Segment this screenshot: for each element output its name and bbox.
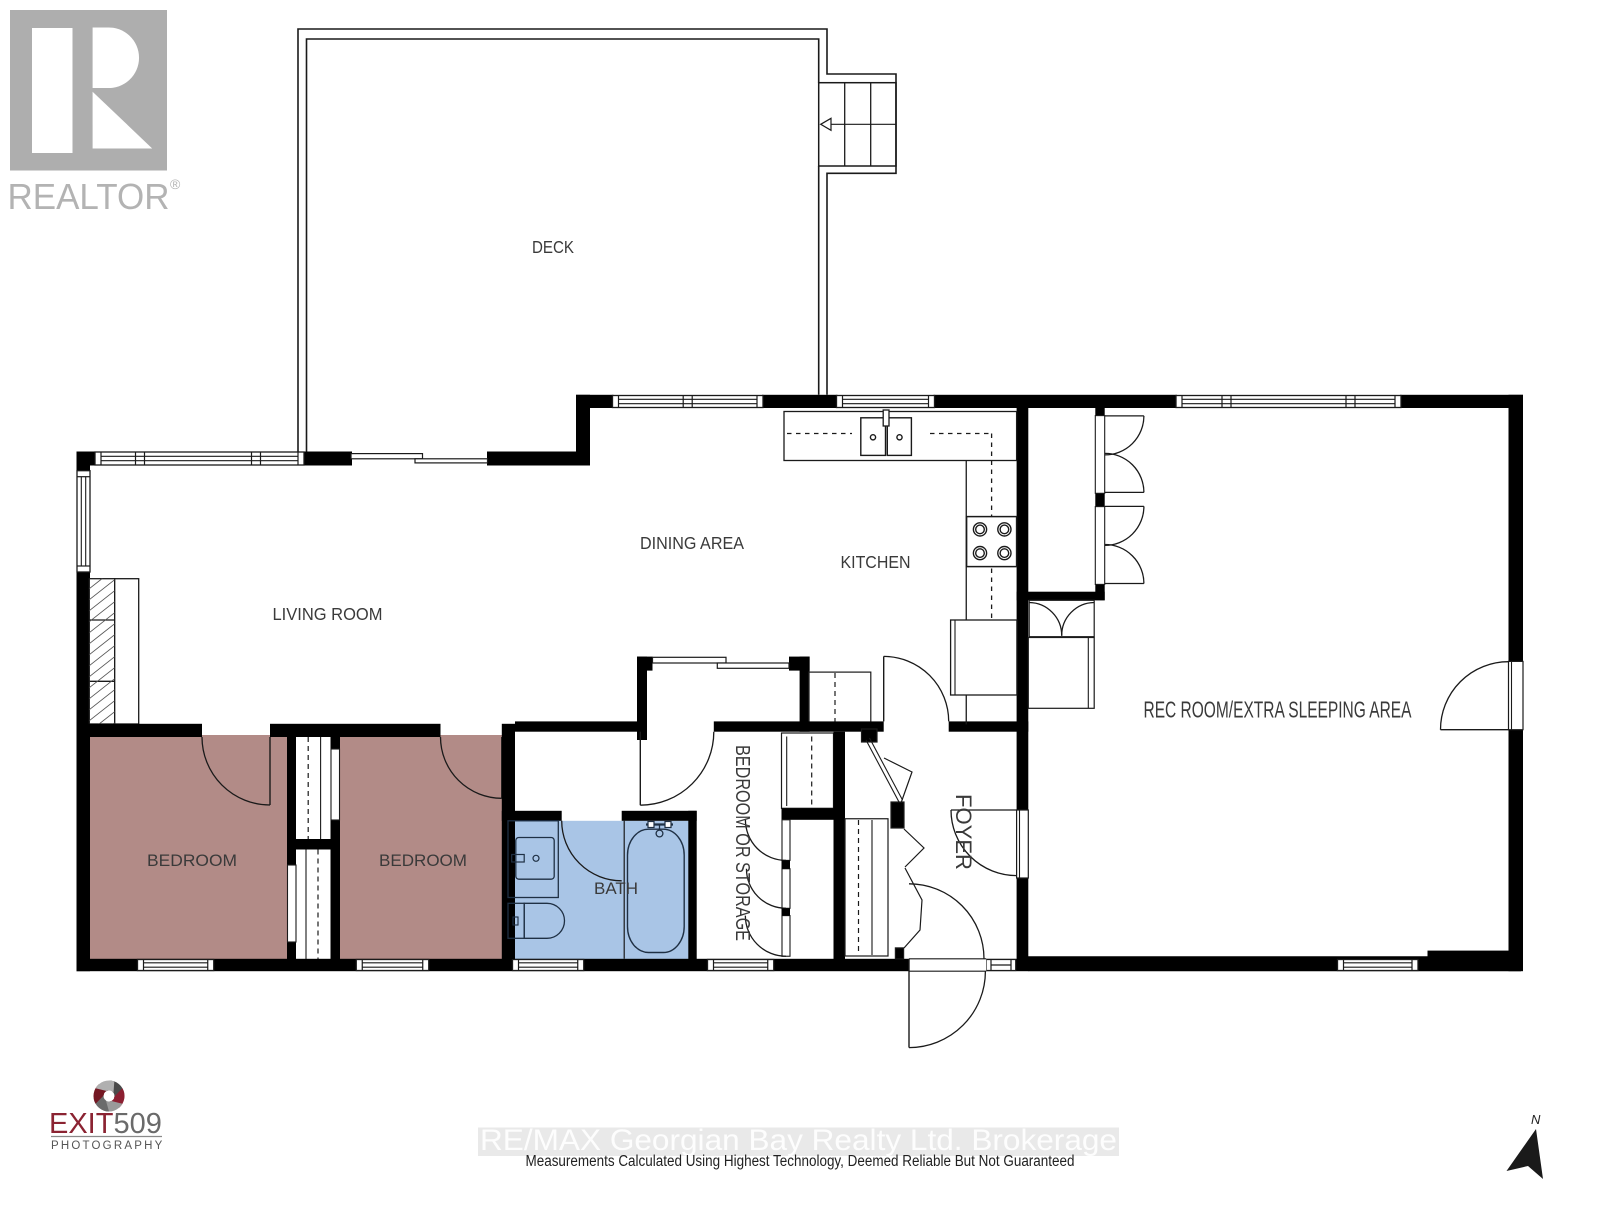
svg-text:DECK: DECK bbox=[532, 237, 574, 257]
svg-text:PHOTOGRAPHY: PHOTOGRAPHY bbox=[51, 1140, 164, 1152]
svg-text:FOYER: FOYER bbox=[951, 794, 976, 870]
svg-text:BEDROOM OR STORAGE: BEDROOM OR STORAGE bbox=[731, 745, 753, 941]
svg-text:®: ® bbox=[170, 176, 181, 192]
svg-text:EXIT509: EXIT509 bbox=[49, 1108, 162, 1140]
svg-text:LIVING ROOM: LIVING ROOM bbox=[273, 604, 383, 624]
svg-text:BATH: BATH bbox=[594, 879, 638, 898]
svg-text:N: N bbox=[1531, 1112, 1541, 1127]
svg-text:REC ROOM/EXTRA SLEEPING AREA: REC ROOM/EXTRA SLEEPING AREA bbox=[1144, 697, 1412, 723]
svg-text:Measurements Calculated Using: Measurements Calculated Using Highest Te… bbox=[526, 1153, 1075, 1170]
svg-text:REALTOR: REALTOR bbox=[8, 176, 170, 217]
svg-text:DINING AREA: DINING AREA bbox=[640, 533, 744, 553]
svg-text:KITCHEN: KITCHEN bbox=[841, 552, 911, 572]
svg-text:BEDROOM: BEDROOM bbox=[147, 851, 237, 870]
svg-text:BEDROOM: BEDROOM bbox=[379, 851, 467, 870]
